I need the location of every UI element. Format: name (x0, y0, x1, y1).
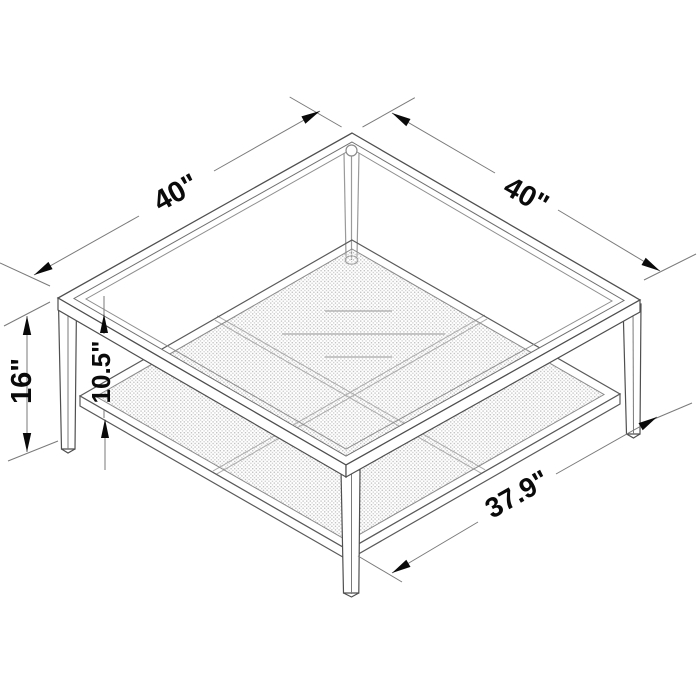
dimension-label-height: 16" (6, 358, 38, 404)
extension-line (8, 441, 58, 461)
dimension-arrow (23, 316, 31, 335)
dimension-label-clearance: 10.5" (86, 341, 116, 404)
extension-line (358, 556, 402, 582)
dimension-label-top-left: 40" (148, 168, 204, 218)
leg-front (341, 470, 360, 597)
dimension-arrow (34, 262, 53, 275)
dimension-label-top-right: 40" (498, 171, 554, 222)
product-dimension-diagram: 40" 40" 16" 10.5" (0, 0, 700, 700)
table-diagram-canvas: 40" 40" 16" 10.5" (0, 0, 700, 700)
dimension-arrow (392, 113, 411, 126)
leg-mount-circle (346, 145, 357, 156)
extension-line (290, 97, 342, 127)
dimension-arrow (301, 111, 320, 124)
dimension-arrow (23, 433, 31, 452)
dimension-arrow (642, 258, 661, 271)
leg-left (59, 304, 77, 453)
leg-back (344, 153, 359, 264)
extension-line (0, 263, 50, 286)
dimension-arrow (639, 417, 658, 430)
dimension-top-left-width: 40" (0, 97, 342, 286)
dimension-overall-height: 16" (4, 302, 58, 461)
leg-right (623, 304, 641, 438)
dimension-arrow (392, 560, 411, 573)
